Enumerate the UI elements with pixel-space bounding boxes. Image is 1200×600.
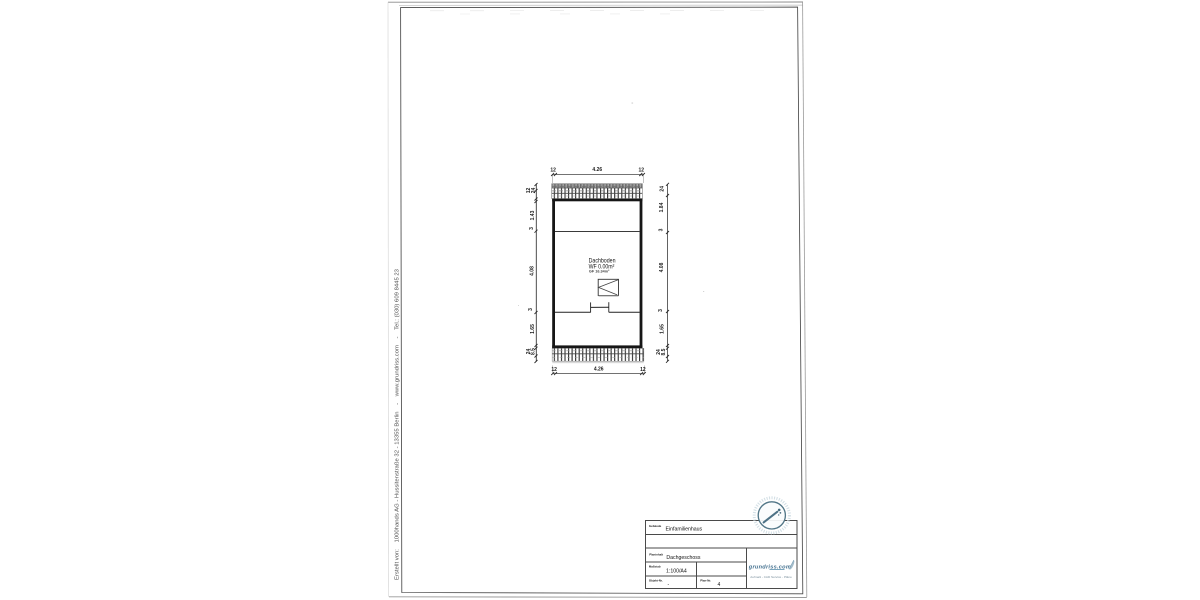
svg-text:1.65: 1.65	[660, 324, 666, 334]
svg-text:4.08: 4.08	[659, 262, 665, 272]
svg-text:Objekt-Nr.: Objekt-Nr.	[649, 579, 663, 583]
svg-text:4: 4	[718, 582, 721, 588]
svg-text:3: 3	[528, 308, 534, 311]
svg-text:4.26: 4.26	[594, 367, 604, 373]
svg-text:12: 12	[640, 367, 646, 373]
svg-text:Erstellt von: 1000hands AG: Erstellt von: 1000hands AG - Hussitenstr…	[394, 269, 400, 580]
svg-text:Maßstab: Maßstab	[649, 564, 661, 568]
svg-text:12: 12	[550, 167, 556, 173]
svg-text:Einfamilienhaus: Einfamilienhaus	[666, 527, 703, 533]
svg-text:24: 24	[659, 186, 665, 192]
svg-text:1.84: 1.84	[659, 202, 665, 212]
svg-text:8.5: 8.5	[531, 348, 537, 355]
svg-text:1:100/A4: 1:100/A4	[666, 569, 687, 575]
svg-text:3: 3	[529, 227, 535, 230]
svg-text:1.43: 1.43	[530, 210, 536, 220]
svg-text:Plan-Nr.: Plan-Nr.	[700, 579, 711, 583]
svg-text:24: 24	[531, 188, 537, 194]
svg-text:Aufmaß - CAD Service - Pläne: Aufmaß - CAD Service - Pläne	[750, 575, 792, 579]
svg-text:GF 16.34m²: GF 16.34m²	[589, 269, 610, 273]
svg-text:4.26: 4.26	[592, 167, 602, 173]
svg-text:12: 12	[551, 367, 557, 373]
svg-text:1.65: 1.65	[530, 324, 536, 334]
svg-text:12: 12	[639, 167, 645, 173]
svg-text:Planinhalt: Planinhalt	[649, 552, 663, 556]
svg-text:3: 3	[659, 228, 665, 231]
svg-text:Dachgeschoss: Dachgeschoss	[666, 555, 700, 561]
svg-text:4.08: 4.08	[529, 266, 535, 276]
svg-text:3: 3	[658, 309, 664, 312]
svg-text:Gebäude: Gebäude	[649, 524, 662, 528]
svg-text:8.5: 8.5	[661, 348, 667, 355]
